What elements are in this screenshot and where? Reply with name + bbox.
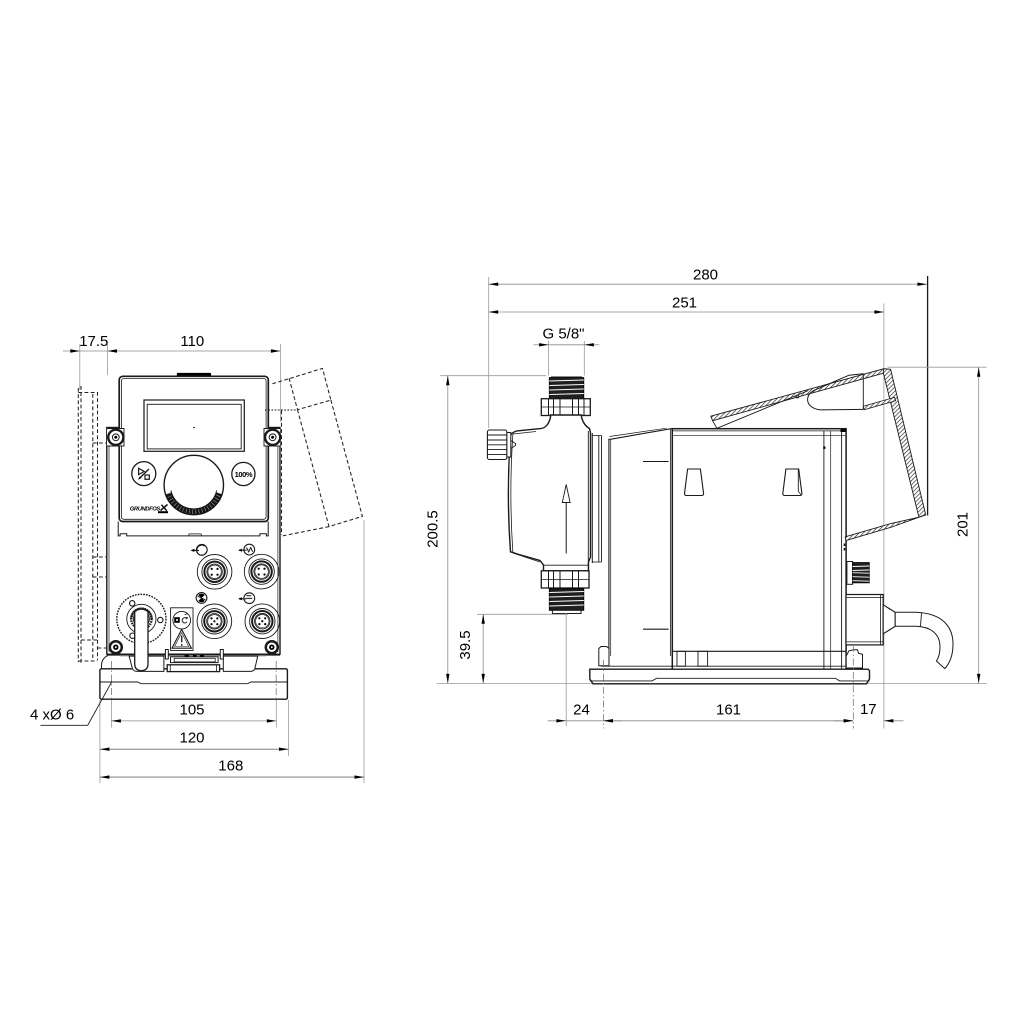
svg-text:201: 201	[955, 512, 972, 537]
svg-text:4 xØ 6: 4 xØ 6	[30, 707, 74, 724]
svg-text:100%: 100%	[235, 470, 253, 479]
svg-text:280: 280	[693, 267, 718, 284]
svg-text:39.5: 39.5	[457, 630, 474, 659]
svg-text:105: 105	[179, 701, 204, 718]
svg-text:17.5: 17.5	[79, 333, 108, 350]
svg-text:200.5: 200.5	[425, 510, 442, 548]
svg-text:120: 120	[179, 730, 204, 747]
svg-text:24: 24	[573, 701, 590, 718]
svg-text:GRUNDFOS: GRUNDFOS	[130, 507, 161, 513]
svg-text:G 5/8": G 5/8"	[542, 326, 584, 343]
svg-text:251: 251	[672, 294, 697, 311]
svg-text:161: 161	[716, 702, 741, 719]
svg-text:110: 110	[180, 333, 204, 350]
svg-text:168: 168	[218, 758, 243, 775]
svg-text:17: 17	[860, 701, 877, 718]
